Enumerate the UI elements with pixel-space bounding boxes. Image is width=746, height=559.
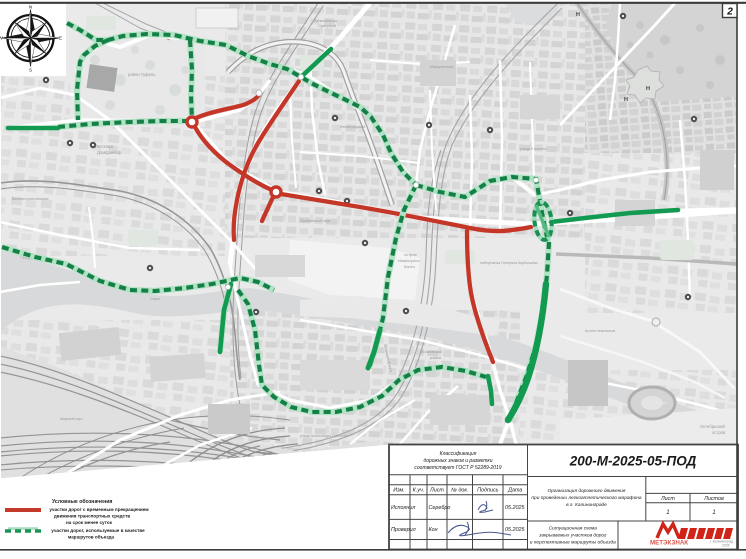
svg-text:Сокол: Сокол [150,297,160,301]
svg-text:остров: остров [712,430,726,435]
svg-text:Аллея Чемпионов: Аллея Чемпионов [585,329,615,333]
svg-text:Прибрежный парк: Прибрежный парк [300,219,331,223]
svg-text:Северный: Северный [318,24,336,28]
svg-text:Дата: Дата [507,488,522,494]
svg-text:H: H [576,12,580,18]
svg-text:Марауненхоф: Марауненхоф [430,65,454,69]
svg-text:H: H [624,97,628,103]
svg-text:соответствует ГОСТ Р 52289-201: соответствует ГОСТ Р 52289-2019 [414,465,501,471]
svg-text:Ленинградский: Ленинградский [340,125,365,129]
svg-text:район Туфель: район Туфель [128,72,156,77]
svg-text:Рыбная: Рыбная [654,401,667,405]
svg-text:Классификация: Классификация [440,451,477,457]
svg-text:1: 1 [666,510,669,516]
svg-text:Домфрийоф: Домфрийоф [97,150,122,155]
svg-text:№ док.: № док. [451,488,468,494]
svg-text:Московский: Московский [420,349,442,354]
svg-text:Проверил: Проверил [391,527,416,533]
svg-text:участки дорог с временным прек: участки дорог с временным прекращением [49,507,149,512]
svg-text:S: S [29,68,32,73]
svg-text:N: N [29,5,32,10]
svg-text:на срок менее суток: на срок менее суток [66,520,113,525]
svg-text:район: район [430,355,441,360]
svg-text:Октябрьский: Октябрьский [700,424,725,429]
svg-text:Вагоностроительная: Вагоностроительная [12,197,48,201]
svg-text:H: H [646,86,650,92]
svg-text:при проведении легкоатлетическ: при проведении легкоатлетического марафо… [531,495,642,501]
svg-text:1: 1 [712,510,715,516]
svg-text:Иммануила: Иммануила [398,258,420,263]
svg-text:участки дорог, используемые в: участки дорог, используемые в качестве [51,528,145,533]
svg-text:2: 2 [726,7,733,18]
svg-text:Ситуационная схема: Ситуационная схема [549,526,598,532]
svg-text:Морской порт: Морской порт [60,417,83,421]
svg-text:Изм.: Изм. [393,488,405,494]
svg-text:набережная Генерала Карбышева: набережная Генерала Карбышева [480,261,538,265]
svg-text:Лист: Лист [429,488,444,494]
svg-text:200-М-2025-05-ПОД: 200-М-2025-05-ПОД [569,454,697,469]
svg-text:Подпись: Подпись [477,488,499,494]
svg-text:05.2025: 05.2025 [505,505,525,511]
svg-text:движения транспортных средств: движения транспортных средств [54,514,130,519]
svg-text:05.2025: 05.2025 [505,527,525,533]
svg-text:остров: остров [404,252,417,257]
svg-text:Организация дорожного движения: Организация дорожного движения [548,488,626,494]
svg-text:К.уч.: К.уч. [413,488,425,494]
svg-text:Лесопарк: Лесопарк [95,144,113,149]
svg-text:Калининград: Калининград [314,19,338,23]
svg-text:Условные обозначения: Условные обозначения [52,498,112,505]
svg-text:2025: 2025 [722,544,730,548]
svg-text:улица Александра Суворова: улица Александра Суворова [300,434,348,438]
svg-text:МЕТЭКЗНАК: МЕТЭКЗНАК [650,540,688,547]
svg-text:Лист: Лист [660,496,675,502]
svg-text:закрываемых участков дорог: закрываемых участков дорог [538,533,607,539]
svg-text:Исполнил: Исполнил [391,505,415,511]
svg-text:в г. Калининграде: в г. Калининграде [566,502,607,508]
svg-text:дорожных знаков и разметки: дорожных знаков и разметки [423,458,492,464]
svg-text:Канта: Канта [404,264,416,269]
svg-text:E: E [59,36,62,41]
svg-text:маршрутов объезда: маршрутов объезда [68,534,115,540]
svg-text:Кон: Кон [429,527,438,533]
svg-text:Листов: Листов [703,496,724,502]
svg-text:улица 9 Апреля: улица 9 Апреля [520,147,546,151]
svg-text:Серебро: Серебро [429,505,451,511]
svg-text:и перспективные маршруты объез: и перспективные маршруты объезда [530,540,616,546]
